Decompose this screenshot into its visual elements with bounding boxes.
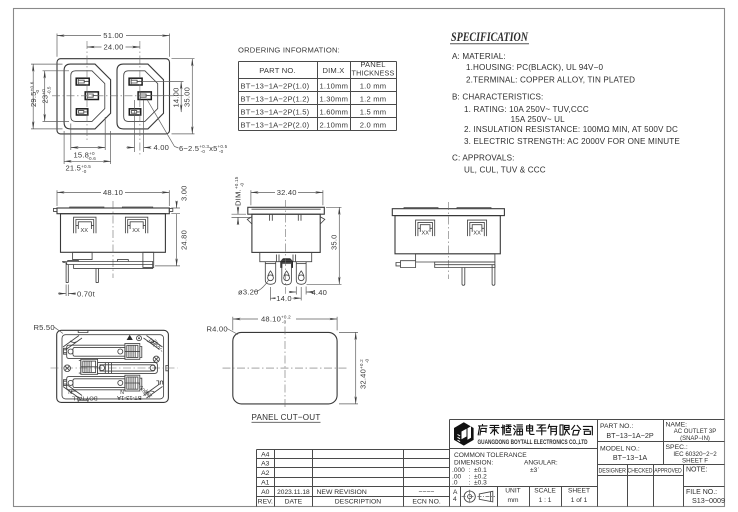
svg-text:COMMON TOLERANCE: COMMON TOLERANCE (454, 452, 527, 459)
svg-text:UNIT: UNIT (505, 488, 520, 495)
svg-text:1.60mm: 1.60mm (320, 107, 349, 116)
svg-text:0.70t: 0.70t (77, 289, 96, 298)
svg-text:DIMENSION:: DIMENSION: (454, 460, 493, 467)
svg-text:A: MATERIAL:: A: MATERIAL: (452, 52, 506, 61)
svg-text:4.40: 4.40 (312, 288, 328, 297)
svg-text:2.10mm: 2.10mm (320, 120, 349, 129)
svg-text:1.5 mm: 1.5 mm (360, 107, 387, 116)
svg-text:-0: -0 (365, 358, 370, 363)
svg-text:14.00: 14.00 (172, 87, 181, 107)
svg-text:APPROVED: APPROVED (654, 467, 682, 474)
svg-text:1. RATING: 10A 250V~ TUV,C: 1. RATING: 10A 250V~ TUV,CCC (464, 105, 589, 114)
svg-text:SHEET: SHEET (568, 488, 590, 495)
svg-text:GUANGDONG BOYTALL ELECTRONICS: GUANGDONG BOYTALL ELECTRONICS CO.,LTD (478, 439, 588, 446)
svg-text:(SNAP−IN): (SNAP−IN) (680, 436, 710, 442)
svg-text:C: APPROVALS:: C: APPROVALS: (452, 153, 515, 162)
svg-text:6−2.5+0.3-0x5+0.5-0: 6−2.5+0.3-0x5+0.5-0 (179, 144, 228, 154)
svg-text:PANEL CUT−OUT: PANEL CUT−OUT (252, 412, 322, 422)
svg-text:1.10mm: 1.10mm (320, 81, 349, 90)
svg-text:R5.50: R5.50 (34, 323, 55, 332)
svg-text:XX: XX (422, 231, 430, 237)
svg-text:BOYTALL: BOYTALL (71, 394, 97, 400)
svg-text:51.00: 51.00 (103, 31, 123, 40)
svg-text:35.0: 35.0 (330, 234, 339, 250)
svg-text:DIM.X: DIM.X (322, 66, 344, 75)
svg-text:1.30mm: 1.30mm (320, 94, 349, 103)
svg-text:35.00: 35.00 (183, 87, 192, 107)
svg-text:15A 250V~ UL: 15A 250V~ UL (511, 115, 566, 124)
svg-text:15.8+0-0.6: 15.8+0-0.6 (74, 151, 97, 161)
svg-text:SCALE: SCALE (534, 488, 556, 495)
svg-text:BT−13−1A−2P(1.0): BT−13−1A−2P(1.0) (241, 81, 310, 90)
svg-text:PART NO.: PART NO. (259, 66, 296, 75)
svg-text:ECN NO.: ECN NO. (412, 499, 440, 506)
svg-text:48.10: 48.10 (103, 188, 123, 197)
svg-text:-0.5: -0.5 (47, 86, 52, 94)
svg-text:BT−13−1A−2P(1.5): BT−13−1A−2P(1.5) (241, 107, 310, 116)
svg-text:DESCRIPTION: DESCRIPTION (335, 499, 382, 506)
svg-text:A: A (453, 489, 458, 496)
svg-text:N: N (120, 388, 124, 394)
svg-text:ø3.20: ø3.20 (238, 288, 258, 297)
svg-text:BT−13−1A: BT−13−1A (613, 453, 648, 462)
svg-text:A1: A1 (261, 480, 270, 487)
svg-text:.0 : ±0.3: .0 : ±0.3 (452, 480, 487, 487)
svg-text:FILE NO.:: FILE NO.: (686, 489, 717, 496)
svg-text:R4.00: R4.00 (207, 325, 228, 334)
svg-text:ANGULAR:: ANGULAR: (524, 460, 558, 467)
svg-text:MODEL NO.:: MODEL NO.: (600, 445, 640, 452)
svg-text:BT−13−1A−2P: BT−13−1A−2P (606, 431, 654, 440)
svg-text:NEW REVISION: NEW REVISION (317, 489, 367, 496)
svg-text:24.80: 24.80 (179, 230, 188, 250)
svg-text:REV.: REV. (258, 499, 273, 506)
svg-text:UL, CUL, TUV & CCC: UL, CUL, TUV & CCC (464, 165, 546, 174)
svg-text:A4: A4 (261, 451, 270, 458)
svg-text:NAME:: NAME: (666, 422, 688, 429)
svg-text:1.2 mm: 1.2 mm (360, 94, 387, 103)
svg-text:2. INSULATION RESISTANCE: 1: 2. INSULATION RESISTANCE: 100MΩ MIN, AT … (464, 125, 678, 134)
svg-text:-0: -0 (239, 182, 244, 187)
svg-text:3.00: 3.00 (179, 185, 188, 201)
svg-text:DESIGNER: DESIGNER (598, 467, 626, 474)
svg-text:ORDERING INFORMATION:: ORDERING INFORMATION: (238, 46, 340, 55)
svg-text:AC OUTLET 3P: AC OUTLET 3P (674, 429, 717, 435)
svg-text:1.HOUSING: PC(BLACK), UL 94V−: 1.HOUSING: PC(BLACK), UL 94V−0 (466, 63, 603, 72)
svg-text:S13−0009: S13−0009 (692, 496, 725, 505)
svg-text:SHEET F: SHEET F (682, 457, 708, 464)
svg-text:A2: A2 (261, 470, 270, 477)
svg-text:14.0: 14.0 (276, 294, 292, 303)
svg-text:1.0 mm: 1.0 mm (360, 81, 387, 90)
svg-text:1 : 1: 1 : 1 (539, 497, 552, 504)
svg-text:2.TERMINAL: COPPER ALLOY, T: 2.TERMINAL: COPPER ALLOY, TIN PLATED (466, 75, 635, 84)
svg-text:SPECIFICATION: SPECIFICATION (451, 30, 529, 44)
svg-text:XX: XX (473, 231, 481, 237)
svg-text:±3ʾ: ±3ʾ (530, 466, 539, 474)
svg-text:PART NO.:: PART NO.: (600, 423, 633, 430)
svg-text:2.0 mm: 2.0 mm (360, 120, 387, 129)
svg-text:A0: A0 (261, 489, 270, 496)
svg-text:UL: UL (156, 379, 164, 385)
svg-text:NOTE:: NOTE: (686, 467, 707, 474)
svg-text:THICKNESS: THICKNESS (352, 69, 395, 78)
svg-text:2023.11.18: 2023.11.18 (277, 489, 310, 496)
svg-text:4: 4 (453, 496, 457, 503)
svg-text:32.40: 32.40 (277, 188, 297, 197)
svg-text:A3: A3 (261, 461, 270, 468)
svg-text:XX: XX (132, 228, 140, 234)
svg-text:XX: XX (81, 228, 89, 234)
svg-text:3. ELECTRIC STRENGTH: AC 2: 3. ELECTRIC STRENGTH: AC 2000V FOR ONE M… (464, 137, 680, 146)
svg-text:SPEC.:: SPEC.: (666, 444, 688, 451)
svg-text:−−−−: −−−− (419, 488, 435, 495)
svg-text:B: CHARACTERISTICS:: B: CHARACTERISTICS: (452, 93, 543, 102)
svg-text:4.00: 4.00 (154, 143, 170, 152)
svg-text:CHECKED: CHECKED (628, 467, 653, 474)
svg-text:1 of 1: 1 of 1 (571, 497, 588, 504)
svg-text:mm: mm (508, 497, 519, 504)
svg-text:BT−13−1A−2P(2.0): BT−13−1A−2P(2.0) (241, 120, 310, 129)
svg-text:24.00: 24.00 (103, 42, 123, 51)
svg-text:BT−13−1A−2P(1.2): BT−13−1A−2P(1.2) (241, 94, 310, 103)
svg-text:N: N (68, 388, 72, 394)
svg-text:-0: -0 (35, 89, 40, 94)
svg-text:DATE: DATE (285, 499, 303, 506)
